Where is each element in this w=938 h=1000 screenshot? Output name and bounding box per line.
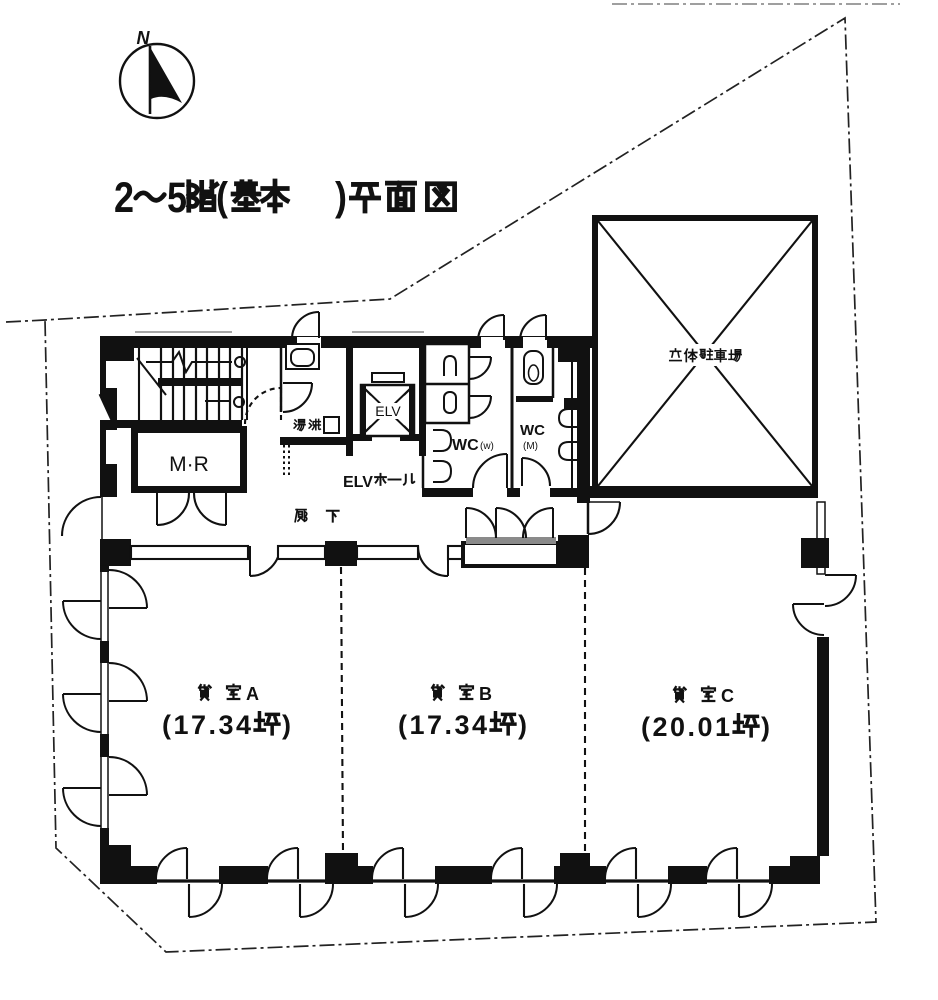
svg-text:ELV: ELV (375, 403, 401, 419)
svg-text:WC: WC (520, 422, 545, 439)
svg-text:C: C (721, 686, 734, 706)
svg-text:N: N (137, 28, 151, 48)
svg-text:(: ( (216, 175, 229, 219)
svg-text:): ) (518, 710, 527, 740)
svg-text:): ) (282, 710, 291, 740)
svg-text:(w): (w) (480, 441, 494, 452)
svg-text:5: 5 (167, 174, 187, 222)
svg-text:): ) (761, 712, 770, 742)
svg-text:(17.34: (17.34 (398, 710, 490, 740)
svg-text:2: 2 (114, 174, 134, 222)
svg-text:M·R: M·R (169, 453, 209, 476)
svg-text:(20.01: (20.01 (641, 712, 733, 742)
svg-text:A: A (246, 684, 259, 704)
svg-text:WC: WC (452, 437, 479, 454)
svg-text:(M): (M) (523, 441, 538, 452)
svg-text:ELV: ELV (343, 474, 373, 491)
svg-text:): ) (335, 175, 347, 219)
svg-text:(17.34: (17.34 (162, 710, 254, 740)
svg-text:B: B (479, 684, 492, 704)
